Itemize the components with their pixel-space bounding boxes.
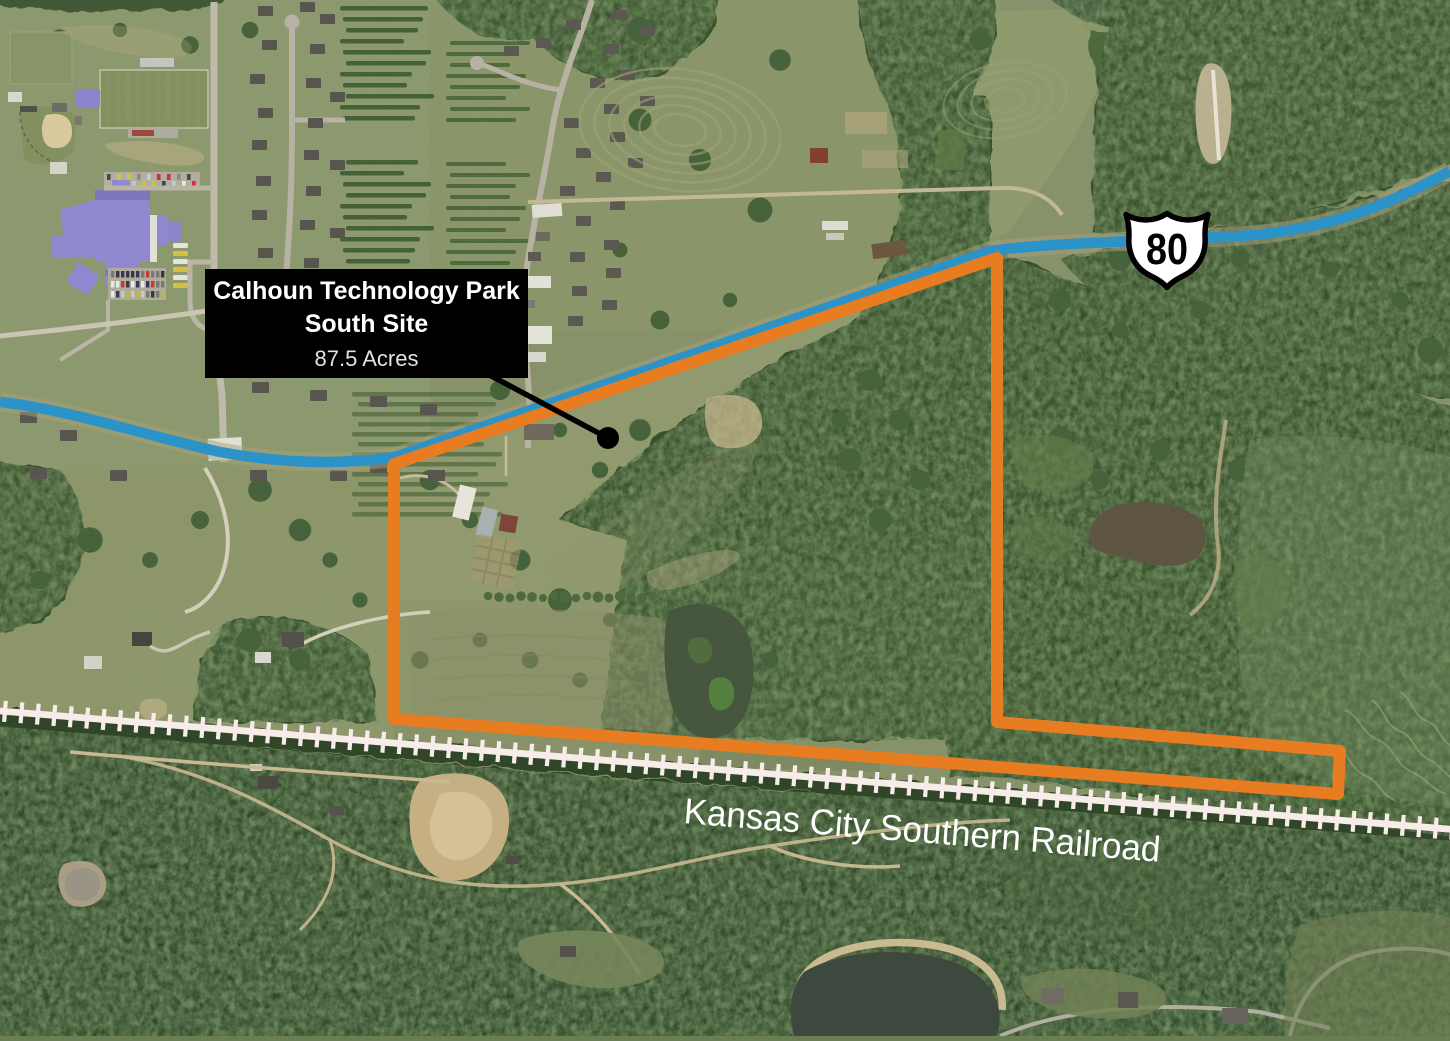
svg-text:South Site: South Site (305, 310, 429, 338)
svg-text:Calhoun Technology Park: Calhoun Technology Park (213, 277, 520, 305)
svg-text:87.5 Acres: 87.5 Acres (315, 346, 419, 371)
svg-text:80: 80 (1146, 225, 1188, 274)
